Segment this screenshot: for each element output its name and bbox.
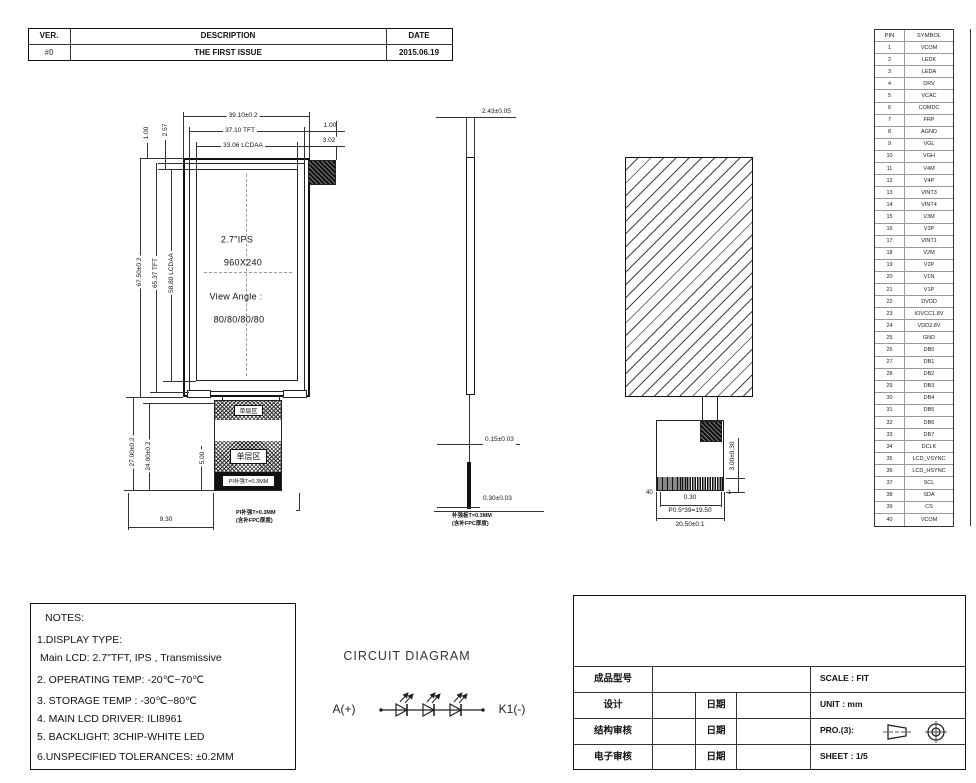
table-row: 24VDD2.8V: [875, 320, 953, 332]
table-row: 18V2M: [875, 248, 953, 260]
dim-pitch-total: P0.5*39=19.50: [666, 507, 713, 516]
table-row: 15V3M: [875, 211, 953, 223]
model-label: 成品型号: [594, 674, 632, 684]
table-row: 32DB6: [875, 417, 953, 429]
table-row: 29DB3: [875, 381, 953, 393]
pin-number-1: 1: [728, 490, 731, 496]
view-angle-label: View Angle :: [210, 293, 263, 302]
table-row: 6COMDC: [875, 103, 953, 115]
design-label: 设计: [603, 700, 622, 710]
pin-number-40: 40: [646, 490, 653, 496]
fpc-zone1-label: 单层区: [234, 405, 263, 416]
dim-pitch: 0.30: [682, 494, 699, 503]
led-string-schematic: [375, 689, 547, 731]
pin-table-rows: 1VCOM2LEDK3LEDA4DRV5VCAC6COMDC7FRP8AGND9…: [875, 42, 953, 526]
notes-box: [30, 603, 296, 770]
contact-pins: [657, 477, 723, 490]
dim-height-aa: 58.80 LCDAA: [168, 251, 177, 295]
dim-fpc-len-outer: 27.00±0.2: [129, 436, 138, 469]
rev-version: #0: [45, 49, 54, 57]
table-row: 7FRP: [875, 115, 953, 127]
table-row: 38SDA: [875, 490, 953, 502]
electronics-date-label: 日期: [706, 752, 725, 762]
dim-fpc-len-inner: 24.00±0.2: [145, 440, 154, 473]
table-row: 20V1N: [875, 272, 953, 284]
table-row: 30DB4: [875, 393, 953, 405]
rev-description: THE FIRST ISSUE: [194, 49, 262, 57]
dim-left-top-2: 2.57: [162, 122, 171, 139]
table-row: 4DRV: [875, 78, 953, 90]
view-angle-value: 80/80/80/80: [214, 316, 265, 325]
table-row: 27DB1: [875, 357, 953, 369]
rev-date: 2015.06.19: [399, 49, 439, 57]
third-angle-projection-icon: [880, 720, 966, 744]
table-row: 39CS: [875, 502, 953, 514]
table-row: 12V4P: [875, 175, 953, 187]
side-note-line1: 补强板T=0.3MM: [452, 514, 492, 520]
table-row: 13VINT3: [875, 187, 953, 199]
table-row: 16V3P: [875, 224, 953, 236]
table-row: 34DCLK: [875, 441, 953, 453]
dim-width-outer: 39.10±0.2: [227, 112, 260, 121]
fpc-note-line2: (含补FPC厚度): [236, 519, 273, 525]
circuit-title: CIRCUIT DIAGRAM: [343, 650, 470, 663]
design-date-label: 日期: [706, 700, 725, 710]
fpc-zone2-label: 单层区: [230, 449, 267, 464]
table-row: 40VCOM: [875, 514, 953, 526]
fpc-note-line1: PI补强T=0.3MM: [236, 511, 276, 517]
panel-size-text: 2.7"IPS: [221, 236, 253, 245]
drawing-sheet: VER. DESCRIPTION DATE #0 THE FIRST ISSUE…: [0, 0, 976, 783]
back-stiffener-hatch: [700, 421, 722, 442]
anode-label: A(+): [332, 703, 355, 715]
dim-contact-height: 3.00±0.30: [729, 440, 738, 473]
dim-stiffener-len: 5.00: [199, 450, 208, 467]
dim-fpc-thickness: 0.15±0.03: [483, 436, 516, 445]
side-note-line2: (含补FPC厚度): [452, 522, 489, 528]
note-line: 2. OPERATING TEMP: -20℃~70℃: [37, 674, 204, 686]
electronics-review-label: 电子审核: [594, 752, 632, 762]
table-row: 8AGND: [875, 127, 953, 139]
note-line: 1.DISPLAY TYPE:: [37, 634, 122, 646]
table-row: 36LCD_HSYNC: [875, 465, 953, 477]
note-line: 4. MAIN LCD DRIVER: ILI8961: [37, 713, 182, 725]
col-header-description: DESCRIPTION: [201, 32, 256, 40]
back-panel-hatch: [625, 157, 753, 397]
pin-col-header: PIN: [875, 30, 905, 41]
table-row: 37SCL: [875, 477, 953, 489]
table-row: 21V1P: [875, 284, 953, 296]
note-line: Main LCD: 2.7"TFT, IPS , Transmissive: [40, 652, 222, 664]
sheet-right-border: [970, 29, 971, 526]
note-line: NOTES:: [45, 612, 84, 624]
dim-left-top-1: 1.00: [143, 125, 152, 142]
note-line: 5. BACKLIGHT: 3CHIP-WHITE LED: [37, 731, 204, 743]
fpc-stiffener-side: [467, 462, 471, 509]
note-line: 3. STORAGE TEMP : -30℃~80℃: [37, 695, 197, 707]
dim-thickness: 2.43±0.05: [480, 108, 513, 117]
table-row: 10VGH: [875, 151, 953, 163]
table-row: 33DB7: [875, 429, 953, 441]
table-row: 28DB2: [875, 369, 953, 381]
table-row: 31DB5: [875, 405, 953, 417]
table-row: 11V4M: [875, 163, 953, 175]
dim-height-outer: 67.50±0.2: [136, 256, 145, 289]
table-row: 2LEDK: [875, 54, 953, 66]
table-row: 3LEDA: [875, 66, 953, 78]
dim-fpc-offset: 9.30: [158, 516, 175, 525]
dim-width-aa: 33.06 LCDAA: [221, 142, 265, 151]
structure-date-label: 日期: [706, 726, 725, 736]
sheet-label: SHEET : 1/5: [820, 752, 868, 761]
pin-table: PIN SYMBOL 1VCOM2LEDK3LEDA4DRV5VCAC6COMD…: [874, 29, 954, 527]
table-row: 26DB0: [875, 344, 953, 356]
table-row: 35LCD_VSYNC: [875, 453, 953, 465]
table-row: 19V2P: [875, 260, 953, 272]
fpc-stiffener-label: PI补强T=0.3MM: [223, 476, 274, 486]
table-row: 5VCAC: [875, 90, 953, 102]
fpc-tail: 单层区 单层区 PI补强T=0.3MM: [214, 400, 282, 491]
projection-label: PRO.(3):: [820, 726, 854, 735]
dim-right-aa: 3.02: [321, 137, 338, 146]
scale-label: SCALE : FIT: [820, 674, 869, 683]
table-row: 17VINT1: [875, 236, 953, 248]
table-row: 25GND: [875, 332, 953, 344]
symbol-col-header: SYMBOL: [905, 30, 953, 41]
table-row: 14VINT4: [875, 199, 953, 211]
note-line: 6.UNSPECIFIED TOLERANCES: ±0.2MM: [37, 751, 234, 763]
table-row: 23IOVCC1.8V: [875, 308, 953, 320]
dim-fpc-width: 20.50±0.1: [674, 521, 707, 530]
dim-stiffener-thickness: 0.30±0.03: [481, 495, 514, 504]
dim-width-tft: 37.10 TFT: [223, 127, 257, 136]
table-row: 22DVDD: [875, 296, 953, 308]
col-header-date: DATE: [408, 32, 429, 40]
col-header-ver: VER.: [40, 32, 59, 40]
table-row: 1VCOM: [875, 42, 953, 54]
table-row: 9VGL: [875, 139, 953, 151]
panel-resolution-text: 960X240: [224, 259, 262, 268]
fpc-bend-hatch: [308, 160, 336, 185]
dim-height-tft: 65.37 TFT: [152, 256, 161, 290]
pin-table-header: PIN SYMBOL: [875, 30, 953, 42]
unit-label: UNIT : mm: [820, 700, 863, 709]
structure-review-label: 结构审核: [594, 726, 632, 736]
